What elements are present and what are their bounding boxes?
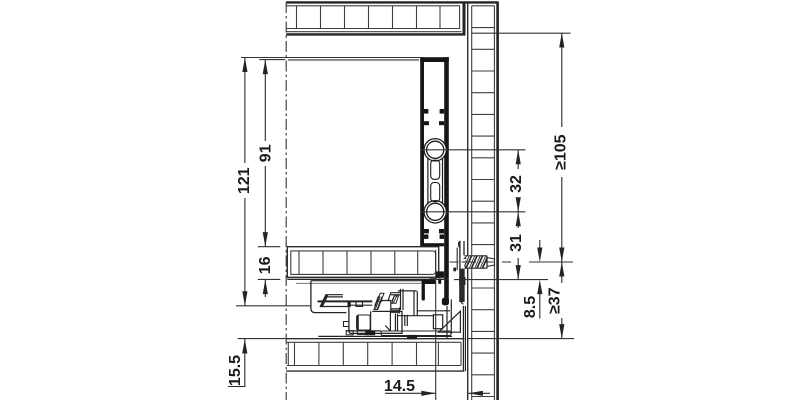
svg-text:15.5: 15.5 [227,355,244,386]
svg-text:≥37: ≥37 [547,287,564,314]
svg-text:121: 121 [236,167,253,194]
svg-text:14.5: 14.5 [384,378,415,395]
svg-text:31: 31 [508,234,525,252]
svg-text:32: 32 [508,175,525,193]
svg-text:91: 91 [258,144,275,162]
svg-text:16: 16 [257,256,274,274]
svg-text:8.5: 8.5 [522,296,539,318]
svg-text:≥105: ≥105 [553,134,570,170]
